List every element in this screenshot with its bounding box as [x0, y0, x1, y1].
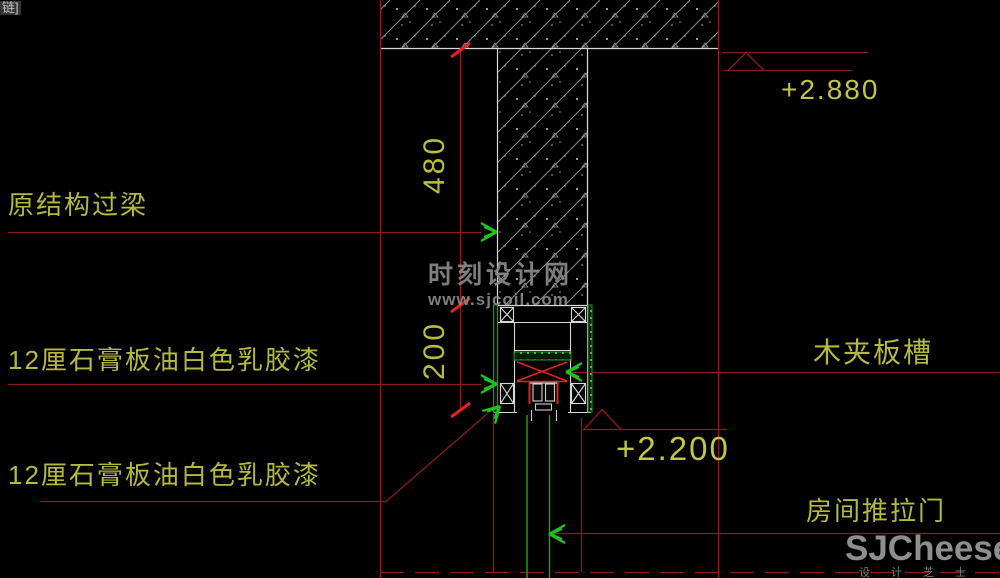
label-sliding-door: 房间推拉门	[806, 498, 946, 524]
sliding-door-panel	[527, 415, 550, 578]
label-lintel: 原结构过梁	[8, 192, 148, 218]
cad-canvas[interactable]: 链] 原结构过梁 12厘石膏板油白色乳胶漆 12厘石膏板油白色乳胶漆 木夹板槽 …	[0, 0, 1000, 578]
dimension-480: 480	[420, 135, 450, 194]
door-roller-mechanism	[530, 381, 558, 421]
dimension-200: 200	[420, 321, 450, 380]
arrow-right-icon	[481, 223, 497, 241]
label-gypsum-bottom: 12厘石膏板油白色乳胶漆	[8, 462, 321, 488]
level-upper-value: +2.880	[781, 76, 879, 104]
label-gypsum-top: 12厘石膏板油白色乳胶漆	[8, 347, 321, 373]
brand-name: SJCheese	[845, 531, 1000, 566]
level-lower-value: +2.200	[616, 432, 730, 465]
window-corner-fragment: 链]	[0, 1, 21, 15]
brand-logo: SJCheese 设计芝士	[845, 531, 1000, 578]
level-marker-lower	[583, 410, 727, 430]
watermark-site-name: 时刻设计网	[428, 263, 573, 288]
level-marker-upper	[722, 53, 868, 71]
watermark: 时刻设计网 www.sjcoil.com	[428, 263, 573, 308]
label-plywood-groove: 木夹板槽	[813, 339, 933, 367]
brand-tagline: 设计芝士	[845, 568, 1000, 578]
watermark-site-url: www.sjcoil.com	[428, 291, 573, 308]
track-groove-cross	[517, 362, 567, 382]
